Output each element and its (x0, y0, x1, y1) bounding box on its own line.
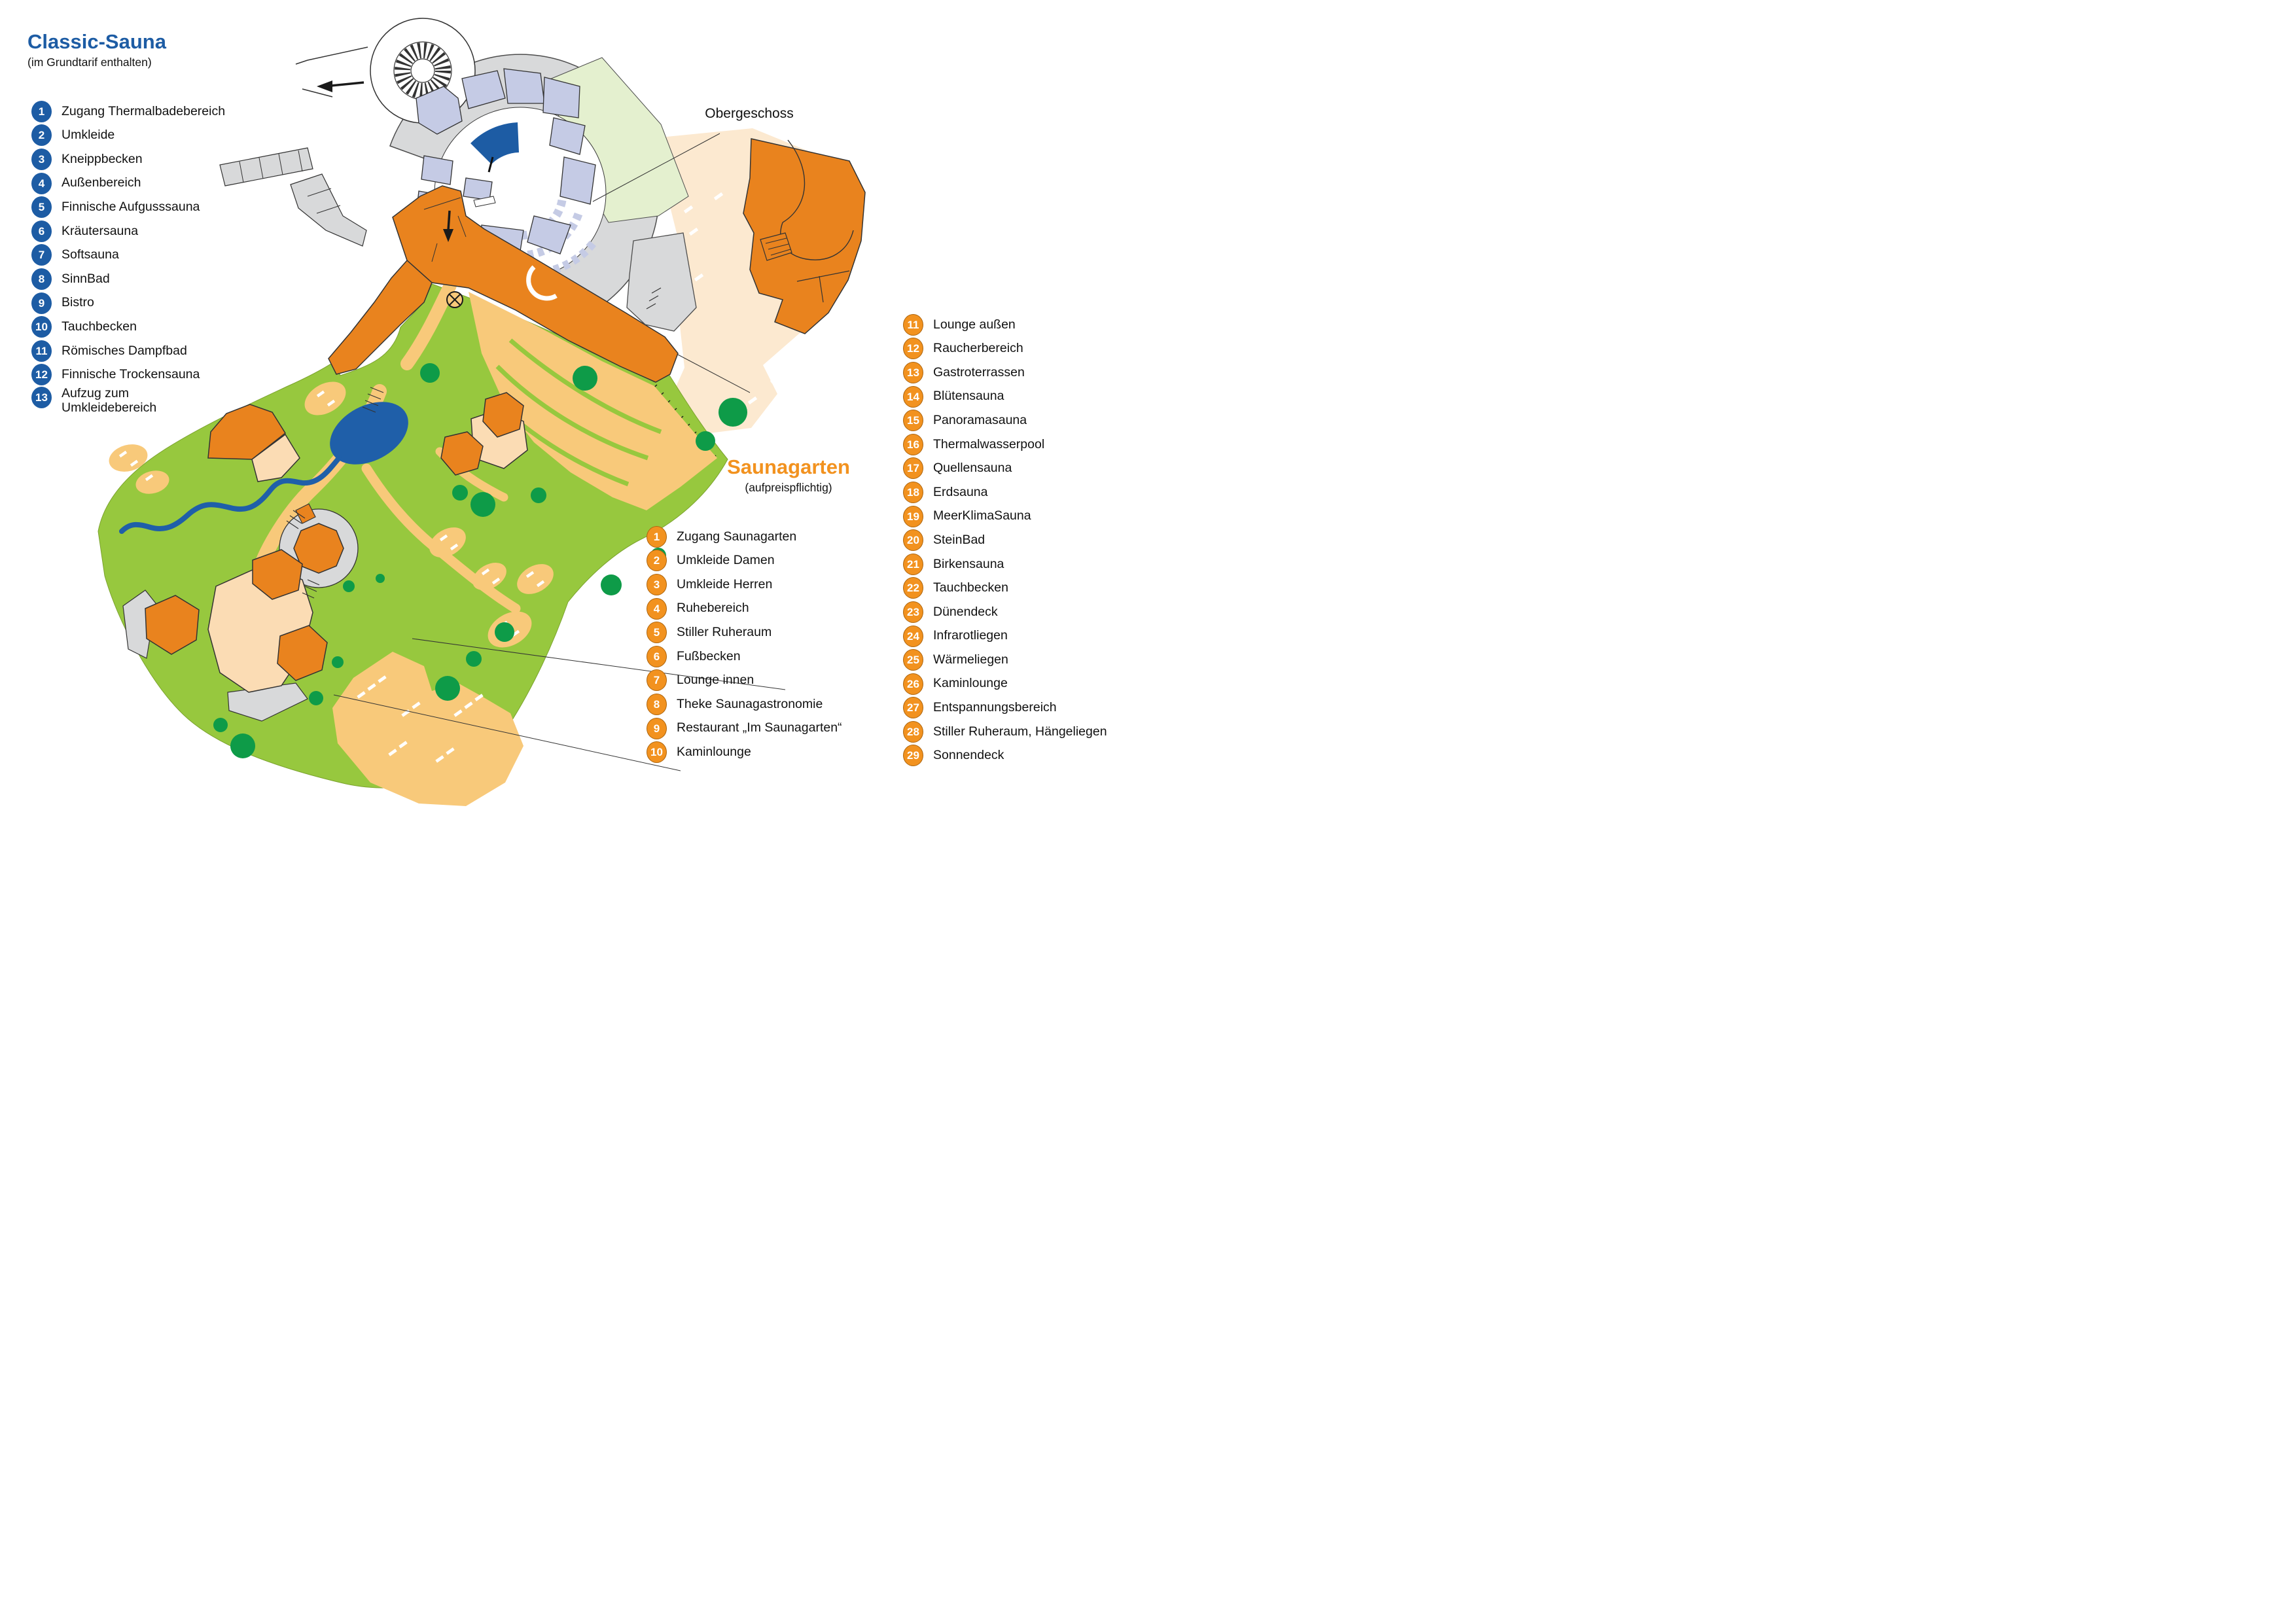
saunagarten-legend-item-10: 10Kaminlounge (647, 740, 842, 764)
saunagarten-legend-label-7: Lounge innen (677, 673, 754, 687)
saunagarten-legend-label-9: Restaurant „Im Saunagarten“ (677, 721, 842, 735)
outdoor-legend-marker-25: 25 (903, 649, 923, 671)
classic-legend-label-3: Kneippbecken (62, 152, 143, 166)
saunagarten-legend-label-5: Stiller Ruheraum (677, 626, 772, 639)
classic-legend-item-5: 5Finnische Aufgusssauna (31, 195, 225, 219)
outdoor-legend-item-15: 15Panoramasauna (903, 408, 1107, 432)
outdoor-legend-marker-27: 27 (903, 697, 923, 718)
saunagarten-legend-label-10: Kaminlounge (677, 745, 751, 759)
outdoor-legend-label-26: Kaminlounge (933, 677, 1008, 690)
classic-legend-header: Classic-Sauna (im Grundtarif enthalten) (27, 31, 166, 69)
saunagarten-legend-item-3: 3Umkleide Herren (647, 573, 842, 597)
classic-legend-marker-1: 1 (31, 101, 52, 122)
classic-legend-item-9: 9Bistro (31, 291, 225, 315)
outdoor-legend-label-14: Blütensauna (933, 389, 1004, 403)
outdoor-legend-label-19: MeerKlimaSauna (933, 509, 1031, 523)
saunagarten-title: Saunagarten (681, 457, 896, 478)
classic-legend-list: 1Zugang Thermalbadebereich2Umkleide3Knei… (31, 99, 225, 415)
outdoor-legend-marker-12: 12 (903, 338, 923, 359)
saunagarten-legend-item-8: 8Theke Saunagastronomie (647, 692, 842, 716)
classic-entrance-arrow (317, 80, 332, 92)
outdoor-legend-marker-16: 16 (903, 434, 923, 455)
cross-symbol (447, 292, 463, 308)
outdoor-legend-label-22: Tauchbecken (933, 581, 1008, 595)
saunagarten-legend-marker-8: 8 (647, 694, 667, 715)
outdoor-legend-marker-21: 21 (903, 554, 923, 575)
saunagarten-outdoor-legend-list: 11Lounge außen12Raucherbereich13Gastrote… (903, 313, 1107, 768)
outdoor-legend-label-11: Lounge außen (933, 318, 1016, 332)
saunagarten-legend-marker-7: 7 (647, 669, 667, 691)
classic-legend-marker-4: 4 (31, 173, 52, 194)
outdoor-legend-label-25: Wärmeliegen (933, 653, 1008, 667)
outdoor-legend-marker-26: 26 (903, 673, 923, 695)
classic-legend-marker-13: 13 (31, 387, 52, 408)
saunagarten-legend-header: Saunagarten (aufpreispflichtig) (681, 457, 896, 495)
saunagarten-legend-label-4: Ruhebereich (677, 601, 749, 615)
outdoor-legend-item-17: 17Quellensauna (903, 457, 1107, 481)
saunagarten-legend-marker-6: 6 (647, 646, 667, 667)
classic-legend-marker-9: 9 (31, 292, 52, 314)
saunagarten-legend-list: 1Zugang Saunagarten2Umkleide Damen3Umkle… (647, 525, 842, 764)
saunagarten-legend-item-1: 1Zugang Saunagarten (647, 525, 842, 549)
classic-legend-marker-6: 6 (31, 221, 52, 242)
outdoor-legend-label-12: Raucherbereich (933, 342, 1023, 355)
saunagarten-legend-item-2: 2Umkleide Damen (647, 549, 842, 573)
outdoor-legend-item-24: 24Infrarotliegen (903, 624, 1107, 648)
saunagarten-legend-label-8: Theke Saunagastronomie (677, 697, 823, 711)
classic-legend-marker-3: 3 (31, 149, 52, 170)
outdoor-legend-item-21: 21Birkensauna (903, 552, 1107, 576)
classic-legend-label-4: Außenbereich (62, 176, 141, 190)
saunagarten-legend-item-4: 4Ruhebereich (647, 597, 842, 621)
outdoor-legend-label-13: Gastroterrassen (933, 366, 1025, 380)
saunagarten-legend-marker-10: 10 (647, 741, 667, 763)
classic-legend-marker-7: 7 (31, 244, 52, 266)
classic-legend-marker-5: 5 (31, 196, 52, 218)
outdoor-legend-label-27: Entspannungsbereich (933, 701, 1057, 715)
gray-annex (627, 233, 696, 331)
classic-legend-item-7: 7Softsauna (31, 243, 225, 268)
outdoor-legend-item-14: 14Blütensauna (903, 385, 1107, 409)
outdoor-legend-marker-22: 22 (903, 577, 923, 599)
saunagarten-legend-marker-3: 3 (647, 574, 667, 595)
saunagarten-legend-label-6: Fußbecken (677, 650, 741, 663)
outdoor-legend-marker-23: 23 (903, 601, 923, 623)
classic-legend-label-13: Aufzug zumUmkleidebereich (62, 387, 156, 415)
classic-legend-item-3: 3Kneippbecken (31, 147, 225, 171)
classic-legend-item-6: 6Kräutersauna (31, 219, 225, 243)
saunagarten-legend-marker-5: 5 (647, 622, 667, 643)
outdoor-legend-label-24: Infrarotliegen (933, 629, 1008, 643)
outdoor-legend-item-27: 27Entspannungsbereich (903, 696, 1107, 720)
outdoor-legend-marker-24: 24 (903, 626, 923, 647)
classic-legend-marker-12: 12 (31, 364, 52, 385)
outdoor-legend-label-18: Erdsauna (933, 485, 987, 499)
outdoor-legend-label-15: Panoramasauna (933, 414, 1027, 427)
classic-legend-label-6: Kräutersauna (62, 224, 138, 238)
outdoor-legend-item-23: 23Dünendeck (903, 600, 1107, 624)
saunagarten-legend-marker-2: 2 (647, 550, 667, 571)
saunagarten-legend-marker-1: 1 (647, 526, 667, 548)
outdoor-legend-label-29: Sonnendeck (933, 749, 1004, 762)
classic-legend-item-12: 12Finnische Trockensauna (31, 363, 225, 387)
outdoor-legend-item-18: 18Erdsauna (903, 480, 1107, 504)
classic-legend-label-10: Tauchbecken (62, 320, 137, 334)
classic-legend-label-1: Zugang Thermalbadebereich (62, 105, 225, 118)
outdoor-legend-marker-11: 11 (903, 314, 923, 336)
classic-legend-label-2: Umkleide (62, 128, 115, 142)
saunagarten-legend-label-1: Zugang Saunagarten (677, 530, 796, 544)
outdoor-legend-marker-17: 17 (903, 457, 923, 479)
classic-legend-item-4: 4Außenbereich (31, 171, 225, 196)
outdoor-legend-marker-15: 15 (903, 410, 923, 431)
saunagarten-legend-label-2: Umkleide Damen (677, 554, 775, 567)
outdoor-legend-item-16: 16Thermalwasserpool (903, 432, 1107, 457)
outdoor-legend-marker-18: 18 (903, 482, 923, 503)
classic-legend-label-7: Softsauna (62, 248, 119, 262)
outdoor-legend-label-17: Quellensauna (933, 461, 1012, 475)
outdoor-legend-marker-19: 19 (903, 506, 923, 527)
classic-legend-item-10: 10Tauchbecken (31, 315, 225, 339)
outdoor-legend-item-26: 26Kaminlounge (903, 672, 1107, 696)
outdoor-legend-marker-29: 29 (903, 745, 923, 766)
saunagarten-subtitle: (aufpreispflichtig) (681, 481, 896, 495)
saunagarten-legend-marker-4: 4 (647, 598, 667, 620)
outdoor-legend-item-11: 11Lounge außen (903, 313, 1107, 337)
outdoor-legend-label-21: Birkensauna (933, 557, 1004, 571)
outdoor-legend-item-13: 13Gastroterrassen (903, 361, 1107, 385)
outdoor-legend-marker-28: 28 (903, 721, 923, 743)
saunagarten-legend-label-3: Umkleide Herren (677, 578, 772, 591)
outdoor-legend-label-28: Stiller Ruheraum, Hängeliegen (933, 725, 1107, 739)
outdoor-legend-item-20: 20SteinBad (903, 528, 1107, 552)
classic-legend-item-1: 1Zugang Thermalbadebereich (31, 99, 225, 124)
classic-legend-marker-11: 11 (31, 340, 52, 362)
outdoor-legend-marker-13: 13 (903, 362, 923, 383)
classic-legend-label-11: Römisches Dampfbad (62, 344, 187, 358)
outdoor-legend-item-28: 28Stiller Ruheraum, Hängeliegen (903, 720, 1107, 744)
outdoor-legend-item-12: 12Raucherbereich (903, 337, 1107, 361)
classic-legend-label-9: Bistro (62, 296, 94, 309)
upper-floor-label: Obergeschoss (681, 106, 818, 122)
outdoor-legend-label-20: SteinBad (933, 533, 985, 547)
outdoor-legend-item-29: 29Sonnendeck (903, 744, 1107, 768)
classic-legend-marker-2: 2 (31, 124, 52, 146)
outdoor-legend-marker-14: 14 (903, 386, 923, 408)
sauna-facility-map-page: Classic-Sauna (im Grundtarif enthalten) … (0, 0, 1144, 812)
classic-legend-label-8: SinnBad (62, 272, 110, 286)
saunagarten-legend-item-6: 6Fußbecken (647, 644, 842, 669)
classic-legend-item-11: 11Römisches Dampfbad (31, 339, 225, 363)
classic-legend-item-2: 2Umkleide (31, 124, 225, 148)
classic-title: Classic-Sauna (27, 31, 166, 52)
outdoor-legend-label-16: Thermalwasserpool (933, 438, 1044, 451)
classic-legend-marker-10: 10 (31, 316, 52, 338)
classic-legend-marker-8: 8 (31, 268, 52, 290)
outdoor-legend-item-22: 22Tauchbecken (903, 576, 1107, 601)
saunagarten-legend-item-9: 9Restaurant „Im Saunagarten“ (647, 716, 842, 741)
outdoor-legend-item-19: 19MeerKlimaSauna (903, 504, 1107, 529)
outdoor-legend-item-25: 25Wärmeliegen (903, 648, 1107, 672)
outdoor-legend-label-23: Dünendeck (933, 605, 998, 619)
outdoor-legend-marker-20: 20 (903, 529, 923, 551)
saunagarten-legend-item-5: 5Stiller Ruheraum (647, 620, 842, 644)
classic-subtitle: (im Grundtarif enthalten) (27, 56, 166, 69)
classic-legend-label-5: Finnische Aufgusssauna (62, 200, 200, 214)
classic-legend-label-12: Finnische Trockensauna (62, 368, 200, 381)
saunagarten-legend-item-7: 7Lounge innen (647, 669, 842, 693)
classic-legend-item-13: 13Aufzug zumUmkleidebereich (31, 387, 225, 415)
saunagarten-legend-marker-9: 9 (647, 718, 667, 739)
classic-legend-item-8: 8SinnBad (31, 267, 225, 291)
